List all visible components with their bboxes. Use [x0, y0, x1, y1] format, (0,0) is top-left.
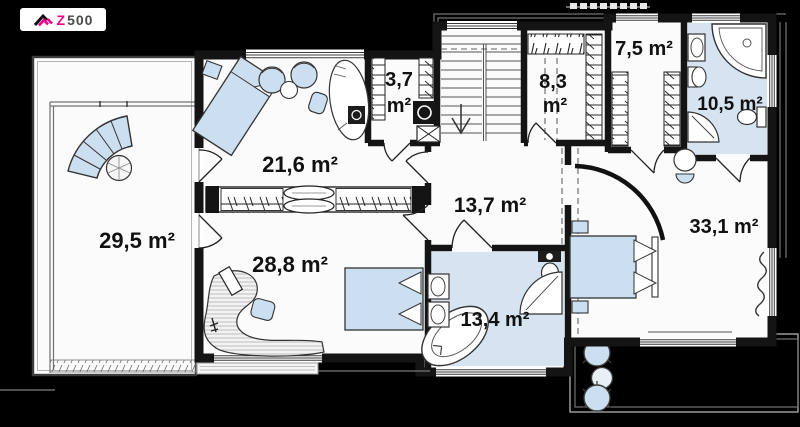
window	[246, 50, 364, 61]
side-table-icon	[281, 82, 298, 99]
window	[768, 248, 777, 316]
room-label-wardrobe-inner-unit: m²	[543, 95, 568, 117]
room-label-bathroom-ensuite: 10,5 m²	[697, 94, 762, 115]
window	[616, 14, 658, 23]
sink-icon	[428, 302, 449, 327]
room-label-hall: 13,7 m²	[454, 194, 526, 217]
room-hall: 13,7 m²	[454, 194, 526, 217]
window	[436, 368, 546, 377]
room-label-bathroom-main: 13,4 m²	[461, 309, 530, 331]
room-label-bedroom-master: 33,1 m²	[690, 216, 759, 238]
dressing-table-icon	[674, 149, 696, 183]
round-table-icon	[107, 156, 132, 181]
room-label-bedroom-upper: 21,6 m²	[262, 152, 338, 177]
sink-icon	[688, 34, 705, 61]
sink-icon	[428, 274, 449, 299]
room-label-bedroom-lower: 28,8 m²	[252, 252, 328, 277]
shaft-icon	[417, 126, 440, 142]
wardrobe-row	[206, 186, 425, 213]
floorplan-svg: 29,5 m²	[0, 0, 800, 427]
room-label-wardrobe-inner-value: 8,3	[539, 71, 567, 93]
logo-text-rest: 500	[67, 13, 93, 27]
floorplan-stage: Z 500	[0, 0, 800, 427]
dimension-ticks	[566, 3, 650, 9]
z500-house-icon	[33, 12, 55, 28]
room-terrace: 29,5 m²	[33, 57, 196, 375]
room-label-terrace: 29,5 m²	[99, 228, 175, 253]
window	[640, 338, 736, 347]
washer-icon	[413, 101, 436, 124]
terrace-deck-strip	[50, 360, 196, 372]
logo-text-z: Z	[57, 13, 66, 27]
bidet-icon	[688, 67, 706, 87]
pc-icon	[348, 106, 365, 124]
room-label-wardrobe-master: 7,5 m²	[615, 38, 673, 60]
window	[447, 21, 517, 31]
nightstand-icon	[572, 301, 588, 313]
room-label-closet-unit: m²	[387, 95, 412, 117]
z500-logo: Z 500	[20, 8, 106, 31]
bed-icon	[345, 268, 423, 330]
nightstand-icon	[572, 221, 588, 233]
door-opening	[195, 148, 204, 182]
exterior-step	[197, 363, 430, 374]
window	[768, 55, 777, 107]
room-label-closet-value: 3,7	[385, 69, 413, 91]
window	[692, 14, 740, 23]
